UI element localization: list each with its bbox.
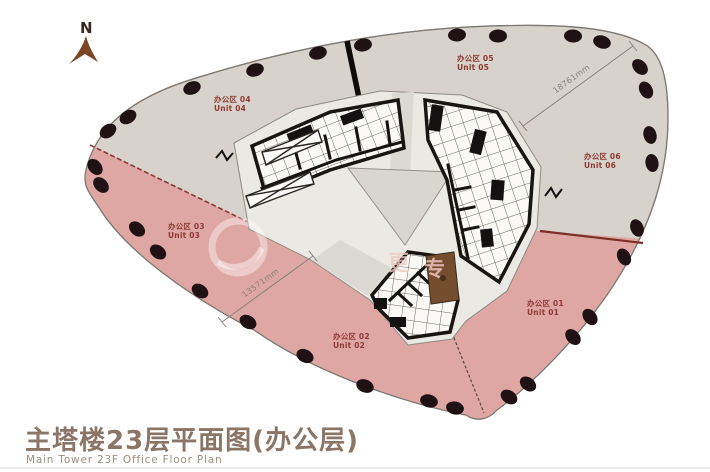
unit-04-label: 办公区 04 Unit 04 bbox=[214, 94, 251, 113]
column-dot bbox=[489, 30, 507, 43]
unit-01-cn: 办公区 01 bbox=[527, 298, 564, 308]
unit-03-cn: 办公区 03 bbox=[168, 221, 205, 231]
page-title: 主塔楼23层平面图(办公层) bbox=[25, 426, 359, 456]
floor-plan-page: 18761mm 13571mm 办公区 01 Unit 01 办公区 02 Un… bbox=[0, 0, 710, 472]
unit-01-en: Unit 01 bbox=[527, 308, 559, 317]
north-arrow-icon bbox=[69, 36, 98, 64]
compass-north-label: N bbox=[80, 19, 93, 37]
title-block: 主塔楼23层平面图(办公层) Main Tower 23F Office Flo… bbox=[25, 426, 359, 466]
unit-04-cn: 办公区 04 bbox=[214, 94, 251, 104]
unit-06-cn: 办公区 06 bbox=[584, 151, 621, 161]
unit-02-en: Unit 02 bbox=[333, 341, 365, 350]
watermark-char-1: 更 bbox=[388, 251, 410, 275]
unit-01-label: 办公区 01 Unit 01 bbox=[527, 298, 564, 317]
unit-02-cn: 办公区 02 bbox=[333, 331, 370, 341]
unit-04-en: Unit 04 bbox=[214, 104, 246, 113]
compass: N bbox=[69, 19, 98, 64]
unit-02-label: 办公区 02 Unit 02 bbox=[333, 331, 370, 350]
page-subtitle: Main Tower 23F Office Floor Plan bbox=[26, 454, 222, 466]
watermark-char-2: 专 bbox=[424, 257, 445, 281]
unit-06-en: Unit 06 bbox=[584, 161, 616, 170]
unit-05-cn: 办公区 05 bbox=[457, 53, 494, 63]
unit-03-label: 办公区 03 Unit 03 bbox=[168, 221, 205, 240]
unit-05-en: Unit 05 bbox=[457, 63, 489, 72]
unit-06-label: 办公区 06 Unit 06 bbox=[584, 151, 621, 170]
floor-plan-drawing: 18761mm 13571mm 办公区 01 Unit 01 办公区 02 Un… bbox=[0, 0, 710, 472]
unit-05-label: 办公区 05 Unit 05 bbox=[457, 53, 494, 72]
unit-03-en: Unit 03 bbox=[168, 231, 200, 240]
